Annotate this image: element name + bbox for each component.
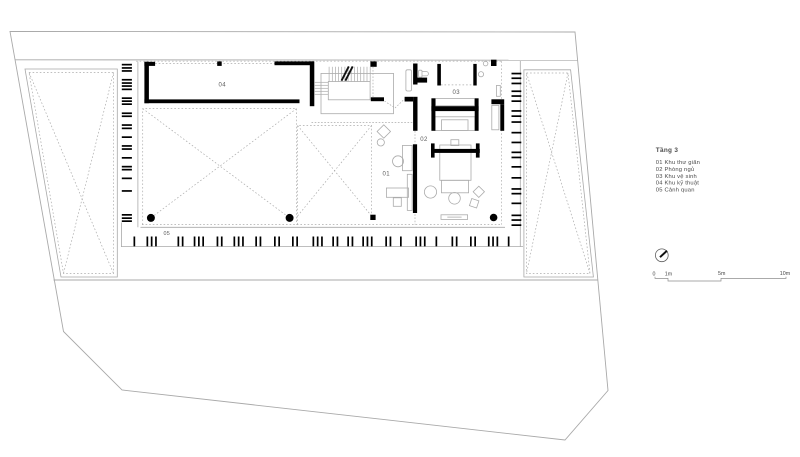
svg-text:02 Phòng ngủ: 02 Phòng ngủ [656,166,695,173]
svg-text:5m: 5m [718,271,726,277]
svg-text:04: 04 [219,83,227,89]
svg-text:03 Khu vệ sinh: 03 Khu vệ sinh [656,174,697,180]
svg-text:03: 03 [453,90,461,96]
svg-text:01 Khu thư giãn: 01 Khu thư giãn [656,160,700,166]
svg-text:10m: 10m [780,271,791,277]
svg-text:05 Cảnh quan: 05 Cảnh quan [656,187,695,193]
svg-text:01: 01 [383,172,391,178]
svg-text:Tầng 3: Tầng 3 [656,145,679,154]
svg-text:1m: 1m [665,272,673,278]
svg-text:02: 02 [420,137,428,143]
svg-text:05: 05 [164,231,171,237]
svg-text:04 Khu kỹ thuật: 04 Khu kỹ thuật [656,181,699,187]
svg-text:0: 0 [653,272,656,278]
